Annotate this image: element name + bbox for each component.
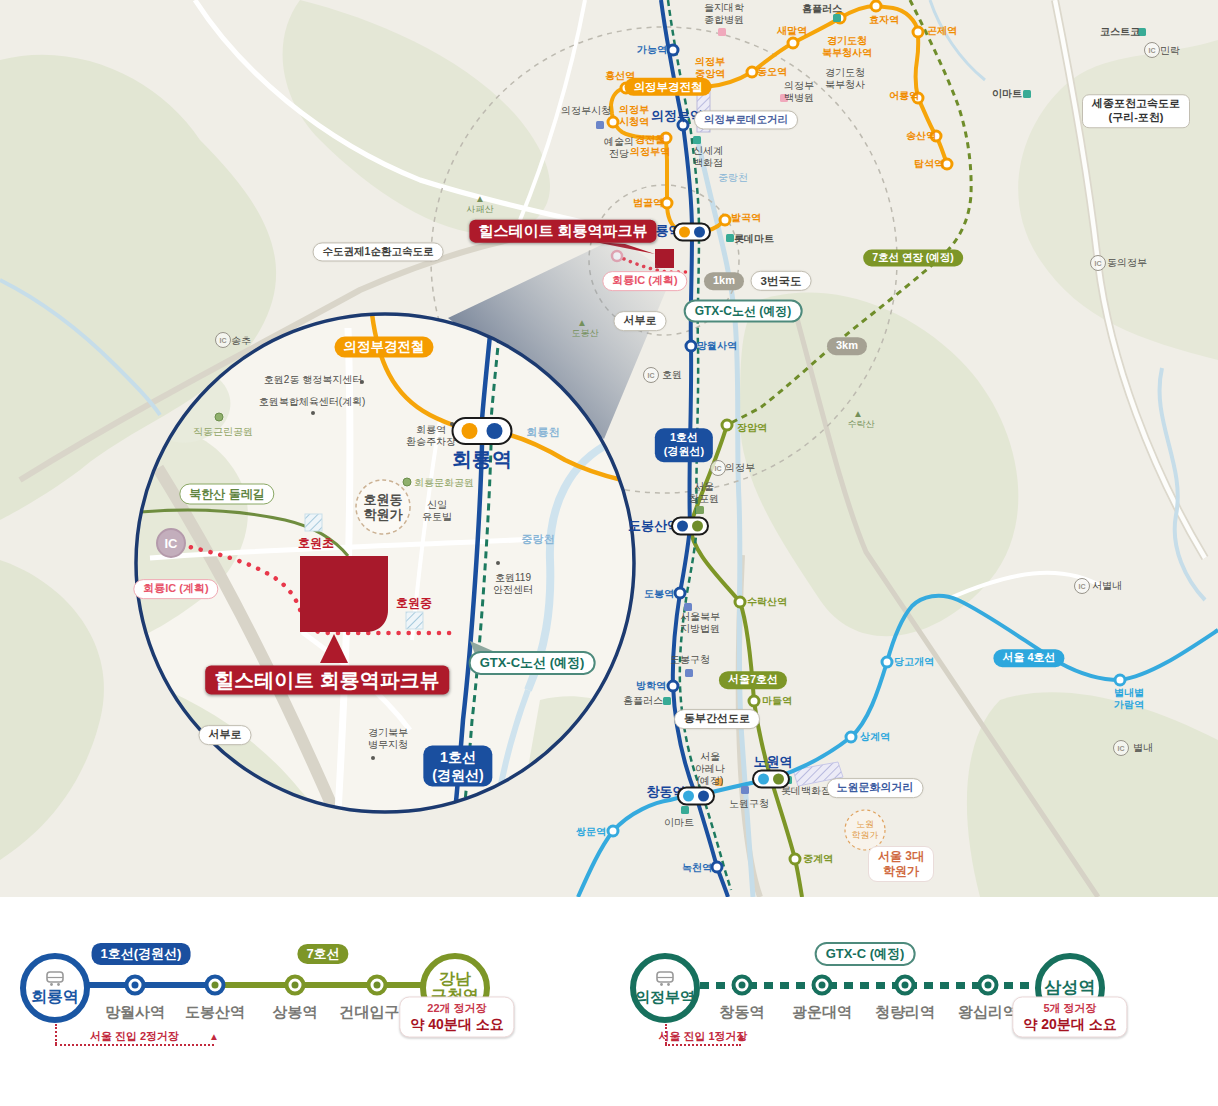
map-badge: 의정부로데오거리 xyxy=(694,110,798,129)
map-label: 탑석역 xyxy=(914,158,944,170)
station-dot xyxy=(721,419,734,432)
route-station-node xyxy=(367,975,388,996)
facility-square-icon xyxy=(696,506,704,514)
route-station-label: 청량리역 xyxy=(875,1003,935,1022)
transfer-station-icon xyxy=(677,787,715,806)
route-station-node xyxy=(732,975,753,996)
route-station-label: 왕십리역 xyxy=(958,1003,1018,1022)
map-label: 롯데백화점 xyxy=(781,785,831,797)
map-badge: 3km xyxy=(827,337,867,355)
route-line xyxy=(88,982,216,988)
route-station-node xyxy=(812,975,833,996)
map-label: 발곡역 xyxy=(731,212,761,224)
map-label: 서울북부 지방법원 xyxy=(680,611,720,635)
map-badge: 의정부경전철 xyxy=(335,337,434,358)
entry-dash-horizontal xyxy=(665,1044,741,1046)
station-name: 회룡역 xyxy=(31,989,79,1006)
map-label: 호원119 안전센터 xyxy=(493,572,533,596)
map-label: 회룡역 환승주차장 xyxy=(406,424,456,448)
map-label: 중랑천 xyxy=(718,172,748,184)
duration: 약 20분대 소요 xyxy=(1023,1016,1116,1034)
line-dot-icon xyxy=(677,521,688,532)
mountain-icon: ▲ xyxy=(853,409,863,419)
map-badge: 서울 4호선 xyxy=(993,649,1064,667)
map-label: 이마트 xyxy=(992,88,1022,100)
route-station-label: 광운대역 xyxy=(792,1003,852,1022)
map-badge: 세종포천고속도로 (구리-포천) xyxy=(1082,94,1190,128)
map-label: 직동근린공원 xyxy=(193,426,253,438)
line-dot-icon xyxy=(758,774,769,785)
ic-icon: IC xyxy=(710,460,726,476)
entry-note: 서울 진입 2정거장 xyxy=(90,1029,179,1044)
map-label: 도봉역 xyxy=(644,588,674,600)
map-label: 망월사역 xyxy=(697,340,737,352)
facility-square-icon xyxy=(741,786,749,794)
map-badge: 힐스테이트 회룡역파크뷰 xyxy=(205,666,449,695)
map-label: 경기북부 병무지청 xyxy=(368,727,408,751)
map-label: 중계역 xyxy=(803,853,833,865)
park-icon xyxy=(215,413,224,422)
facility-square-icon xyxy=(663,697,671,705)
map-label: 호원2동 행정복지센터 xyxy=(264,374,362,386)
map-label: 쌍문역 xyxy=(576,826,606,838)
mountain-icon: ▲ xyxy=(475,194,485,204)
map-badge: 서부로 xyxy=(199,725,252,745)
facility-square-icon xyxy=(726,234,734,242)
map-label: 수락산 xyxy=(848,419,875,430)
map-label: 경기도청 북부청사 xyxy=(825,67,865,91)
facility-square-icon xyxy=(833,14,841,22)
poi-dot-icon xyxy=(496,561,500,565)
line-dot-icon xyxy=(679,227,690,238)
route-origin-station: 회룡역 xyxy=(20,953,90,1023)
line-dot-icon xyxy=(698,791,709,802)
route-station-node xyxy=(125,975,146,996)
line-dot-icon xyxy=(462,423,478,439)
transfer-station-icon xyxy=(452,417,513,445)
map-badge: 1km xyxy=(704,272,744,290)
map-badge: 동부간선도로 xyxy=(674,709,760,729)
poi-dot-icon xyxy=(311,411,315,415)
map-label: 호원 xyxy=(662,369,682,381)
station-inner-dot xyxy=(902,982,909,989)
station-dot xyxy=(667,680,680,693)
travel-time-badge: 5개 정거장약 20분대 소요 xyxy=(1012,997,1127,1038)
station-dot xyxy=(870,0,883,13)
map-badge: 서부로 xyxy=(614,311,667,331)
map-label: 동의정부 xyxy=(1107,257,1147,269)
station-dot xyxy=(748,695,761,708)
entry-dash-vertical xyxy=(55,1024,57,1044)
map-label: 곤제역 xyxy=(927,25,957,37)
route-origin-station: 의정부역 xyxy=(630,953,700,1023)
station-dot xyxy=(667,44,680,57)
station-name: 의정부역 xyxy=(635,989,695,1005)
map-label: 서별내 xyxy=(1092,580,1122,592)
facility-square-icon xyxy=(681,806,689,814)
stop-count: 22개 정거장 xyxy=(410,1001,503,1016)
duration: 약 40분대 소요 xyxy=(410,1016,503,1034)
map-badge: 회룡IC (계획) xyxy=(602,271,687,291)
transfer-station-icon xyxy=(752,770,790,789)
ic-icon: IC xyxy=(1144,42,1160,58)
route-line-badge: 7호선 xyxy=(297,944,348,964)
map-label: 호원중 xyxy=(396,596,432,610)
map-label: 회룡문화공원 xyxy=(414,477,474,489)
line-dot-icon xyxy=(773,774,784,785)
map-label: 녹천역 xyxy=(682,862,712,874)
map-label: 마들역 xyxy=(762,695,792,707)
station-dot xyxy=(685,340,698,353)
map-label: 도봉산 xyxy=(572,328,599,339)
map-label: 노원 학원가 xyxy=(852,819,879,840)
train-icon xyxy=(45,971,65,987)
map-label: 홈플러스 xyxy=(802,3,842,15)
route-station-node xyxy=(895,975,916,996)
entry-arrow-icon: ▲ xyxy=(209,1032,219,1042)
mountain-icon: ▲ xyxy=(577,318,587,328)
ic-icon: IC xyxy=(1074,578,1090,594)
station-dot xyxy=(734,596,747,609)
station-inner-dot xyxy=(739,982,746,989)
station-name: 삼성역 xyxy=(1045,979,1096,997)
station-dot xyxy=(787,37,800,50)
station-inner-dot xyxy=(819,982,826,989)
map-label: 송추 xyxy=(231,335,251,347)
map-label: 사패산 xyxy=(467,204,494,215)
transfer-station-icon xyxy=(671,517,709,536)
map-badge: 서울7호선 xyxy=(719,671,787,689)
map-label: 회룡역 xyxy=(452,448,512,472)
map-label: 당고개역 xyxy=(894,656,934,668)
location-map-page: 을지대학 종합병원홈플러스효자역곤제역코스트코민락가능역새말역경기도청 북부청사… xyxy=(0,0,1218,1106)
map-label: 새말역 xyxy=(777,25,807,37)
map-label: 효자역 xyxy=(869,14,899,26)
station-inner-dot xyxy=(132,982,139,989)
map-label: 동오역 xyxy=(757,66,787,78)
route-station-node xyxy=(978,975,999,996)
map-badge: 의정부경전철 xyxy=(625,78,712,96)
map-label: 가능역 xyxy=(637,44,667,56)
line-dot-icon xyxy=(694,227,705,238)
park-icon xyxy=(403,478,412,487)
map-label: 의정부 시청역 xyxy=(619,104,649,128)
map-label: 의정부 중앙역 xyxy=(695,56,725,80)
map-label: 방학역 xyxy=(636,680,666,692)
map-label: 어룡역 xyxy=(889,90,919,102)
station-dot xyxy=(674,587,687,600)
map-badge: 노원문화의거리 xyxy=(827,778,924,798)
map-badge: GTX-C노선 (예정) xyxy=(684,300,803,323)
facility-square-icon xyxy=(1023,90,1031,98)
map-badge: 북한산 둘레길 xyxy=(179,484,274,505)
map-badge: 회룡IC (계획) xyxy=(133,579,218,599)
map-label: 노원구청 xyxy=(729,798,769,810)
stop-count: 5개 정거장 xyxy=(1023,1001,1116,1016)
facility-square-icon xyxy=(718,28,726,36)
route-station-label: 상봉역 xyxy=(273,1003,318,1022)
ic-icon: IC xyxy=(156,528,186,558)
map-badge: 서울 3대 학원가 xyxy=(868,846,934,882)
line-dot-icon xyxy=(683,791,694,802)
map-label: 의정부 xyxy=(725,462,755,474)
station-dot xyxy=(912,26,925,39)
map-label: 신일 유토빌 xyxy=(422,499,452,523)
entry-arrow-icon: ▲ xyxy=(736,1032,746,1042)
train-icon xyxy=(655,971,675,987)
map-label: 서울 아레나 (예정) xyxy=(695,751,725,786)
poi-dot-icon xyxy=(371,756,375,760)
station-dot xyxy=(845,731,858,744)
map-label: 의정부시청 xyxy=(561,105,611,117)
map-label: 홈플러스 xyxy=(623,695,663,707)
route-station-node xyxy=(205,975,226,996)
facility-square-icon xyxy=(684,603,692,611)
station-inner-dot xyxy=(374,982,381,989)
station-dot xyxy=(711,861,724,874)
map-label: 민락 xyxy=(1160,45,1180,57)
ic-icon: IC xyxy=(215,332,231,348)
map-label: 롯데마트 xyxy=(734,233,774,245)
map-badge: 7호선 연장 (예정) xyxy=(863,249,963,266)
map-label: 중랑천 xyxy=(522,533,555,546)
map-badge: 1호선 (경원선) xyxy=(423,746,492,787)
facility-square-icon xyxy=(596,121,604,129)
route-station-label: 도봉산역 xyxy=(185,1003,245,1022)
route-station-label: 창동역 xyxy=(720,1003,765,1022)
map-badge: 힐스테이트 회룡역파크뷰 xyxy=(469,220,656,243)
map-label: 송산역 xyxy=(906,130,936,142)
map-label: 호원초 xyxy=(298,536,334,550)
map-label: 별내별 가람역 xyxy=(1114,687,1144,711)
map-label: 호원복합체육센터(계획) xyxy=(259,396,366,408)
map-badge: GTX-C노선 (예정) xyxy=(469,651,596,675)
station-inner-dot xyxy=(292,982,299,989)
map-label: 을지대학 종합병원 xyxy=(704,2,744,26)
map-label: 별내 xyxy=(1133,742,1153,754)
facility-square-icon xyxy=(685,669,693,677)
map-label: 의정부 백병원 xyxy=(784,80,814,104)
ic-icon: IC xyxy=(643,367,659,383)
map-label: 이마트 xyxy=(664,817,694,829)
map-label: 호원동 학원가 xyxy=(364,492,403,523)
route-line-badge: 1호선(경원선) xyxy=(92,943,191,965)
map-label: 도봉구청 xyxy=(670,654,710,666)
map-label: 코스트코 xyxy=(1100,26,1140,38)
entry-dash-horizontal xyxy=(55,1044,214,1046)
map-label: 노원역 xyxy=(754,754,793,769)
station-dot xyxy=(1114,674,1127,687)
station-dot xyxy=(719,214,732,227)
map-label: 경전철 의정부역 xyxy=(630,134,670,158)
route-station-node xyxy=(285,975,306,996)
transfer-station-icon xyxy=(673,223,711,242)
map-badge: 1호선 (경원선) xyxy=(655,428,713,462)
line-dot-icon xyxy=(487,423,503,439)
facility-square-icon xyxy=(693,136,701,144)
map-label: 장암역 xyxy=(737,422,767,434)
map-label: 경기도청 북부청사역 xyxy=(822,35,872,59)
travel-time-badge: 22개 정거장약 40분대 소요 xyxy=(399,997,514,1038)
ic-icon: IC xyxy=(1090,255,1106,271)
route-station-label: 망월사역 xyxy=(105,1003,165,1022)
map-label: 신세계 백화점 xyxy=(693,145,723,169)
station-dot xyxy=(607,116,620,129)
map-badge: 수도권제1순환고속도로 xyxy=(313,242,444,261)
line-dot-icon xyxy=(692,521,703,532)
map-canvas xyxy=(0,0,1218,1106)
map-label: 수락산역 xyxy=(747,596,787,608)
station-inner-dot xyxy=(985,982,992,989)
map-label: 서울 창포원 xyxy=(689,481,719,505)
station-dot xyxy=(789,853,802,866)
entry-note: 서울 진입 1정거장 xyxy=(658,1029,747,1044)
station-inner-dot xyxy=(212,982,219,989)
map-label: 상계역 xyxy=(860,731,890,743)
map-label: 범골역 xyxy=(633,197,663,209)
station-dot xyxy=(881,656,894,669)
map-label: 회룡천 xyxy=(527,426,560,439)
ic-icon: IC xyxy=(1113,740,1129,756)
route-line-badge: GTX-C (예정) xyxy=(815,942,916,966)
station-dot xyxy=(607,825,620,838)
map-badge: 3번국도 xyxy=(751,271,812,291)
route-line xyxy=(216,982,422,988)
